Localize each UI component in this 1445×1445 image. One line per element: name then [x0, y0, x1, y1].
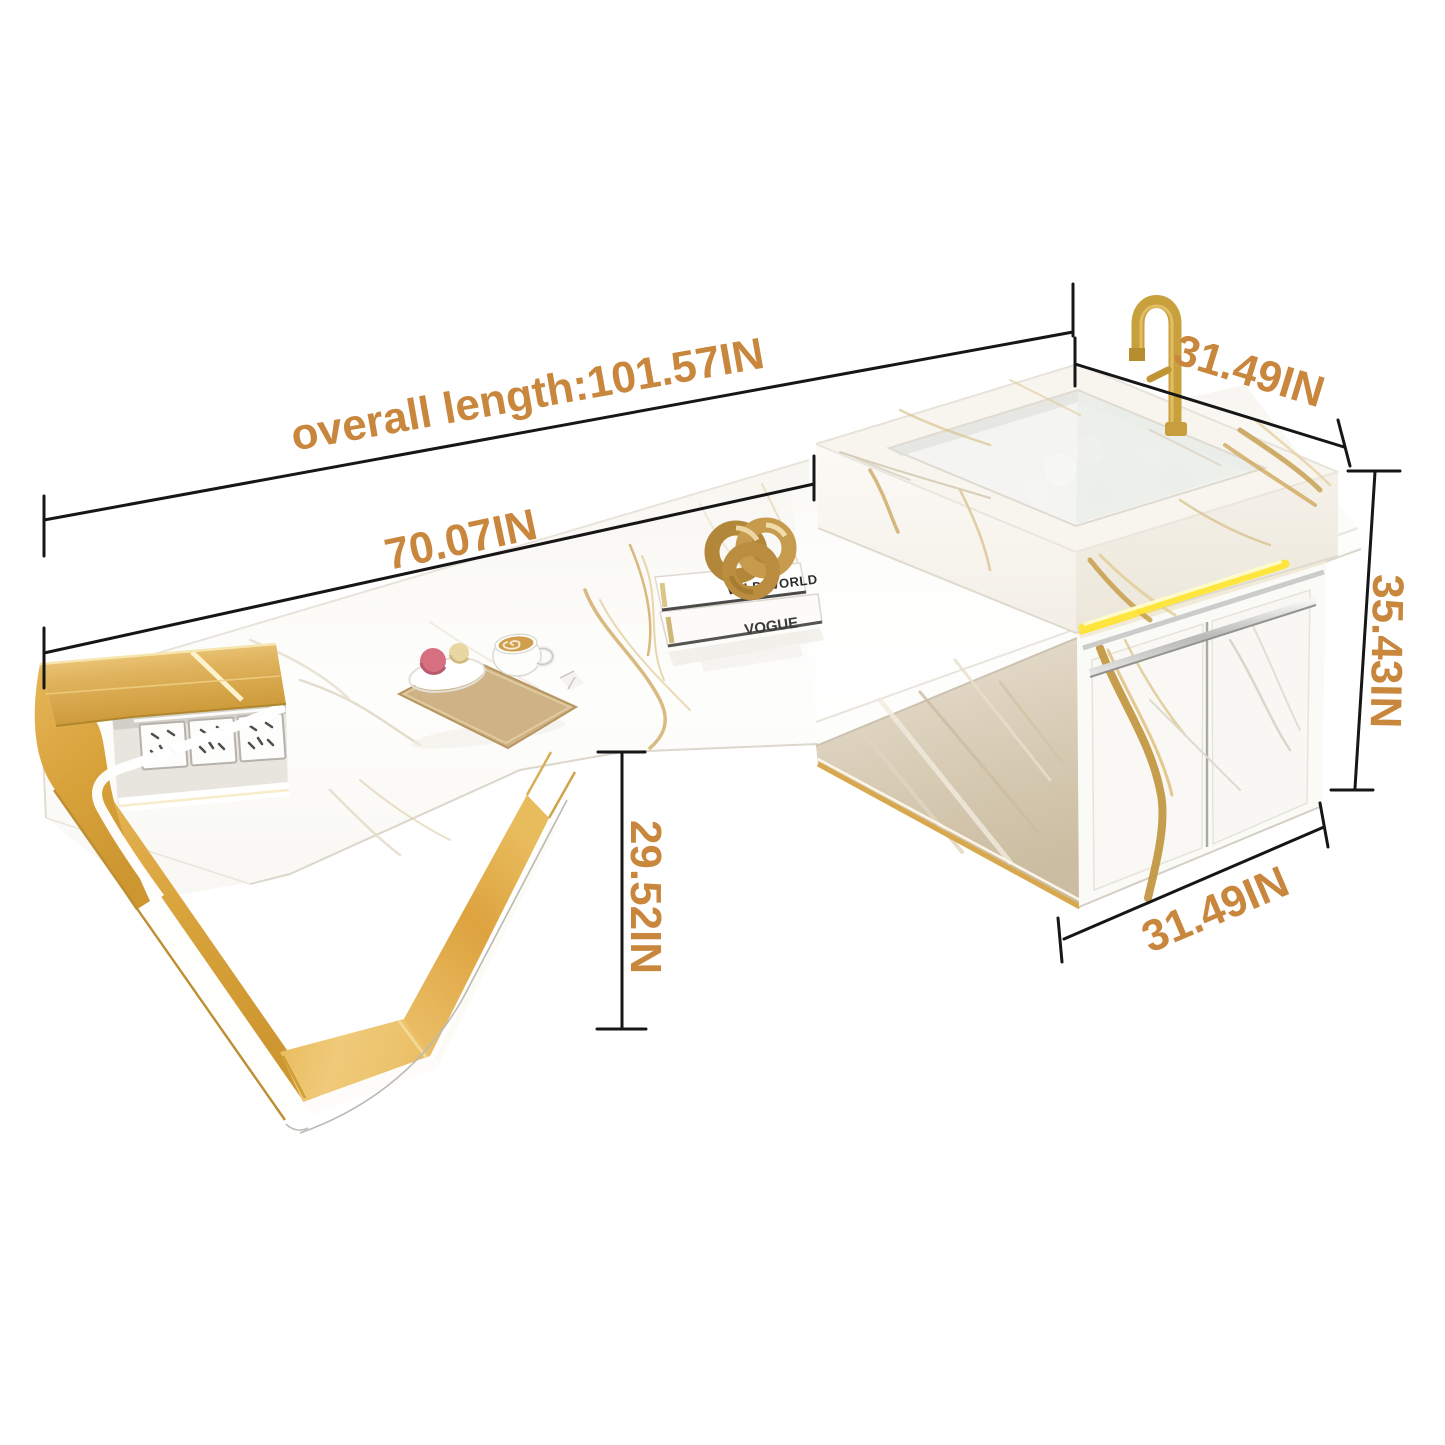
- svg-text:29.52IN: 29.52IN: [621, 820, 670, 974]
- svg-text:35.43IN: 35.43IN: [1361, 574, 1413, 729]
